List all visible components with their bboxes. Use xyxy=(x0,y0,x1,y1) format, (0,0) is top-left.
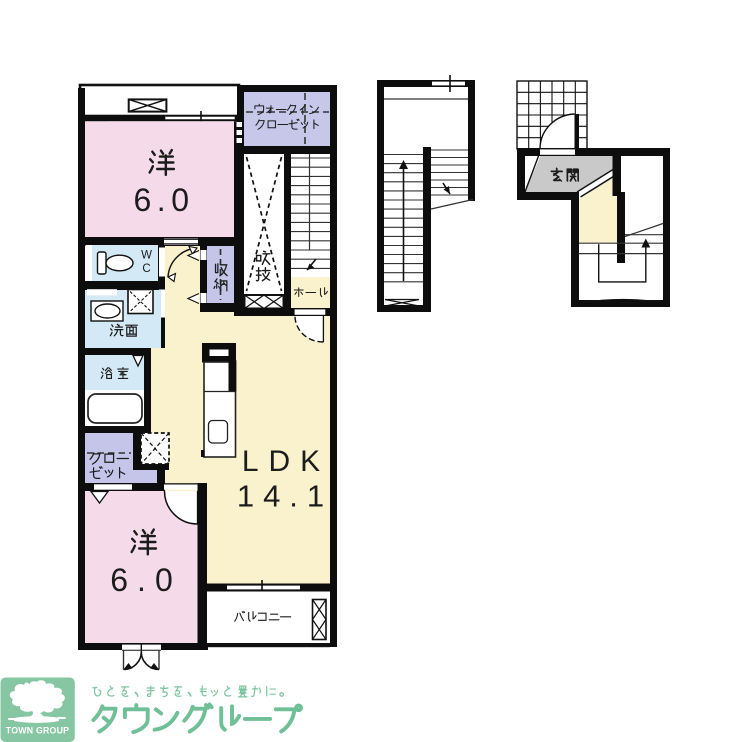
svg-text:W: W xyxy=(141,250,152,262)
svg-text:LDK: LDK xyxy=(242,445,330,478)
svg-text:C: C xyxy=(142,263,150,275)
svg-text:TOWN GROUP: TOWN GROUP xyxy=(6,726,69,736)
svg-text:6.0: 6.0 xyxy=(134,182,195,218)
svg-text:6.0: 6.0 xyxy=(110,562,181,598)
svg-text:14.1: 14.1 xyxy=(237,479,333,514)
